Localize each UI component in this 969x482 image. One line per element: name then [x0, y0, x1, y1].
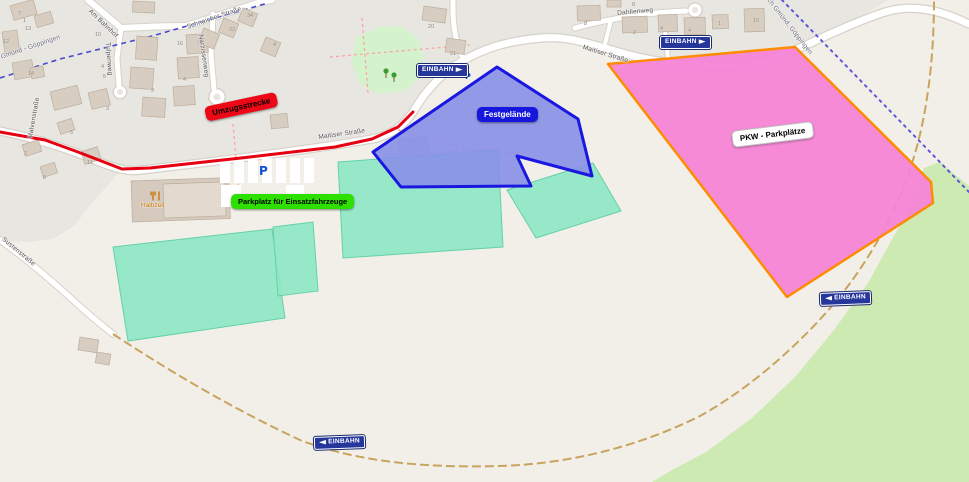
map-canvas[interactable]: Am BahnhofTulpenwegNarzissenwegSchnaiche… — [0, 0, 969, 482]
staging-area-small[interactable] — [273, 222, 318, 296]
base-map — [0, 0, 969, 482]
